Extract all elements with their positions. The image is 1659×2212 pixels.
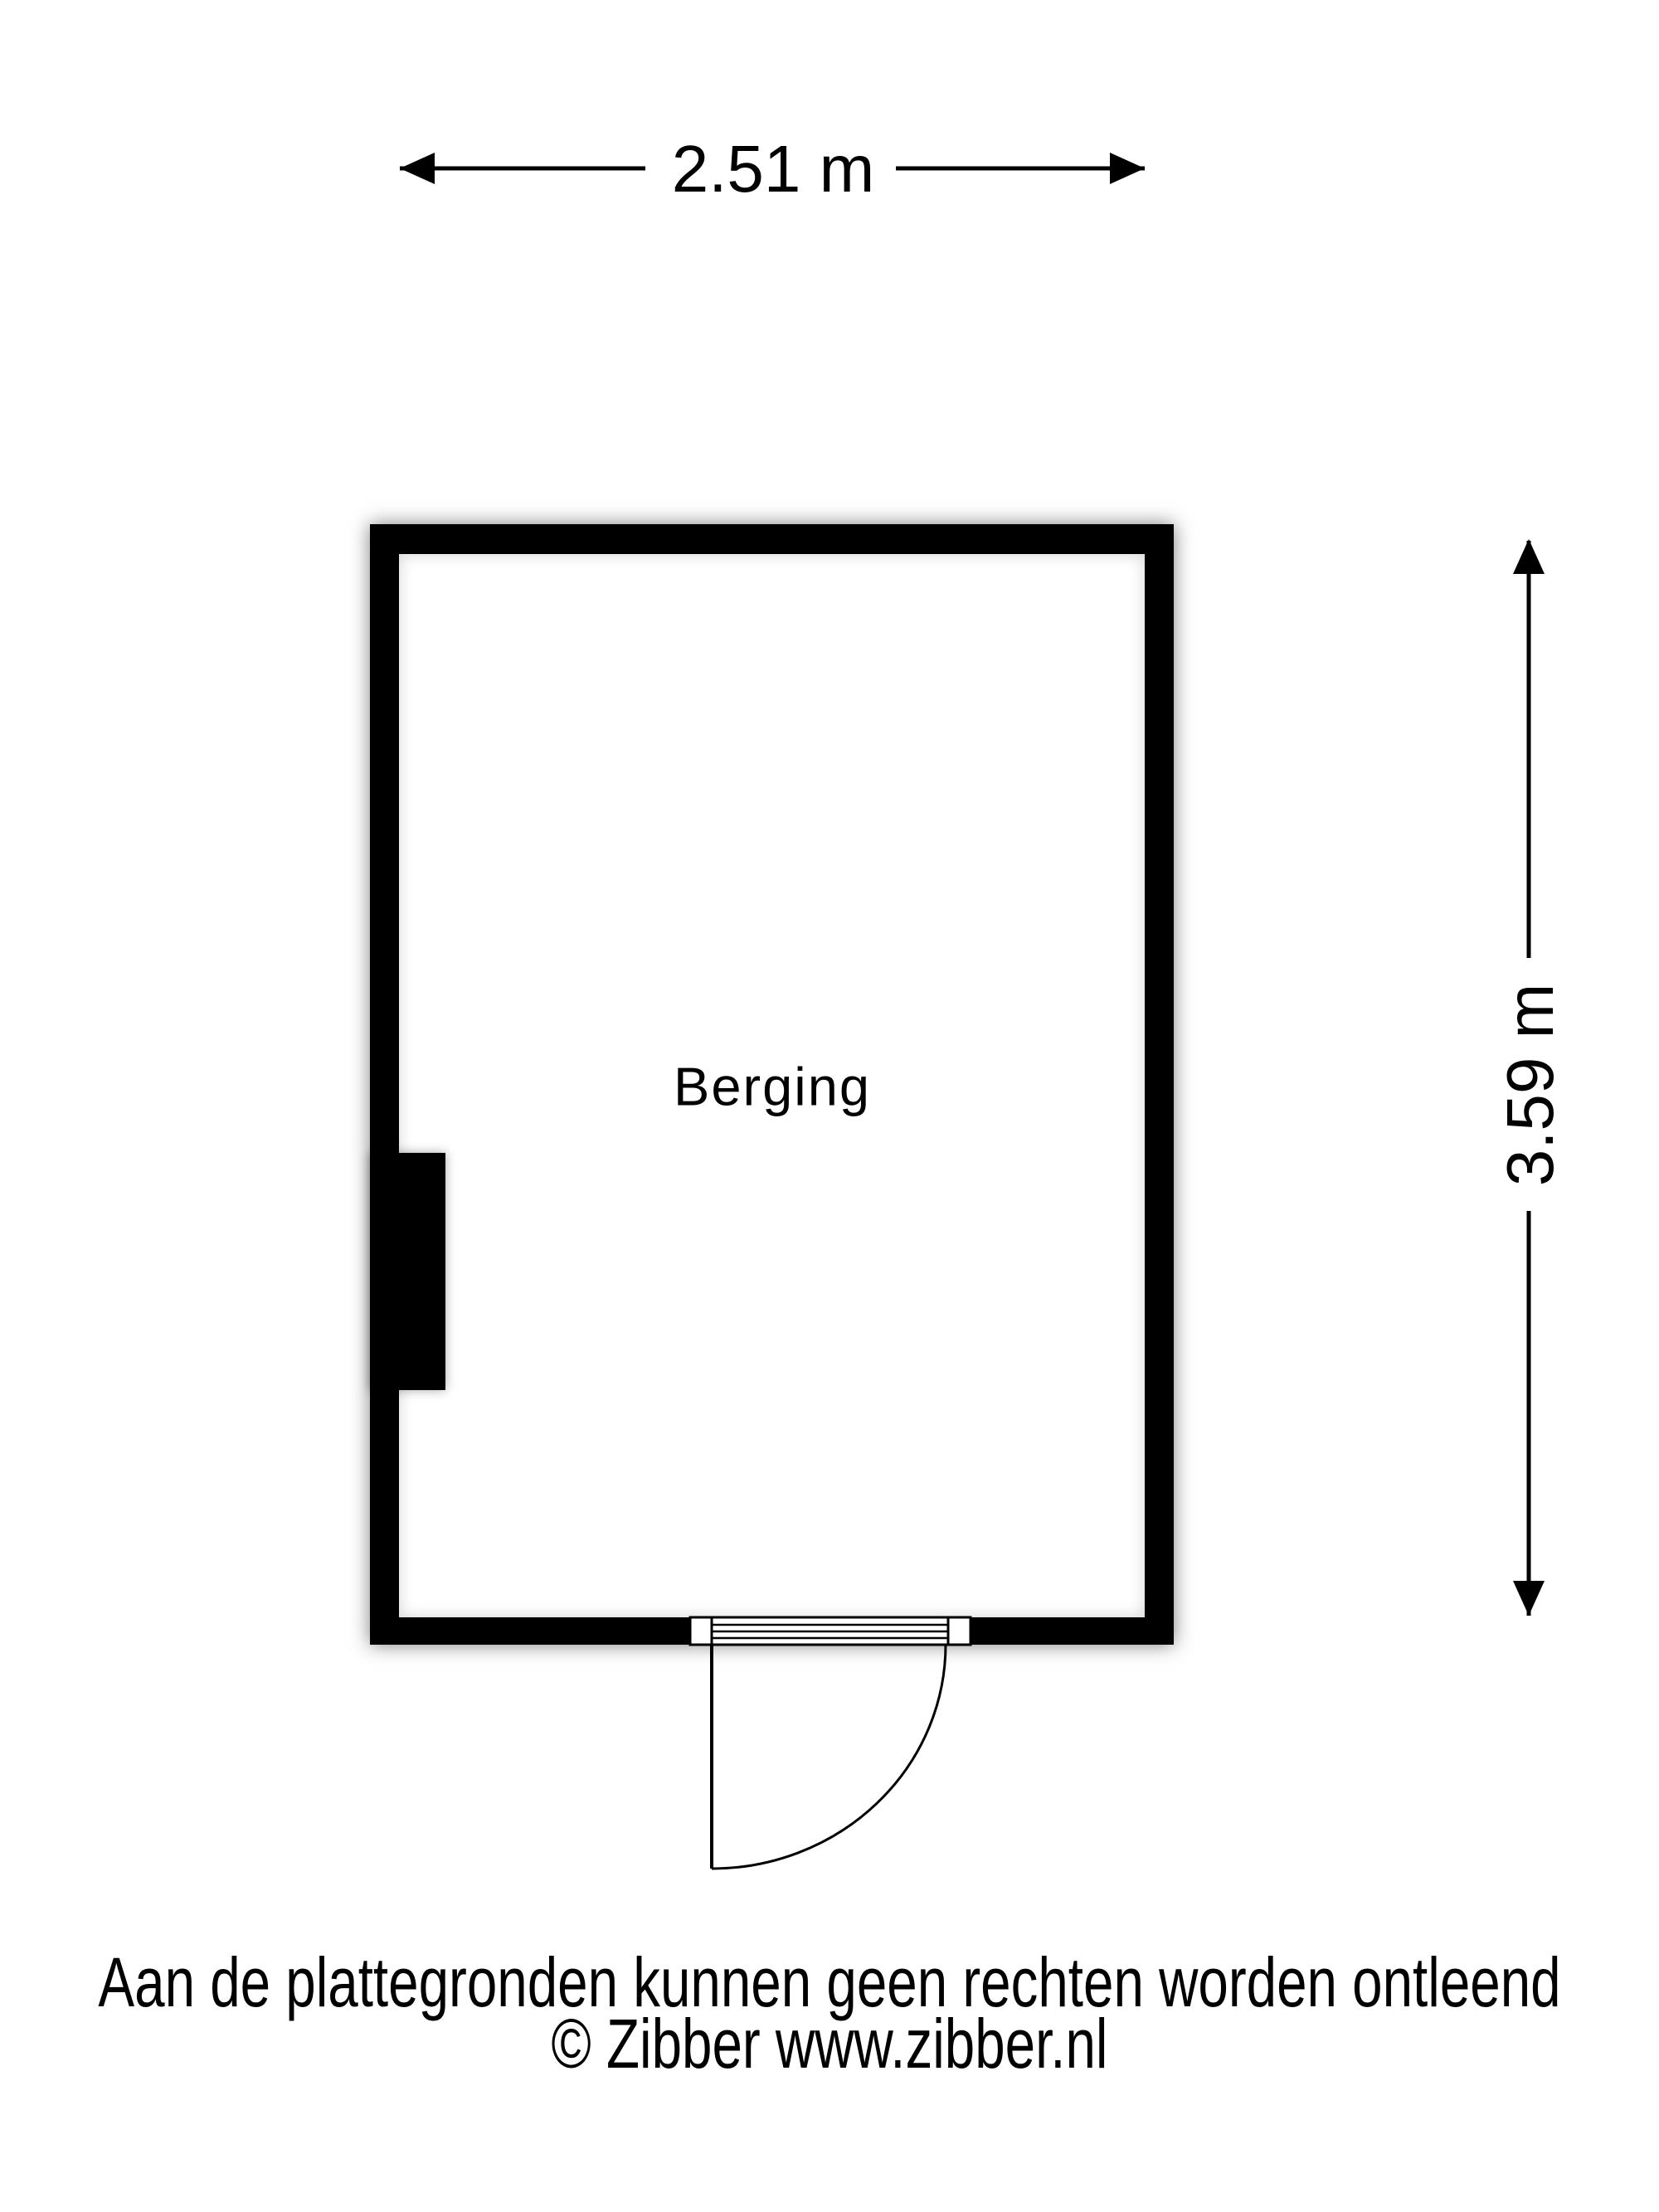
arrowhead-right-icon — [1110, 153, 1145, 184]
floorplan-canvas: 2.51 m 3.59 m Berging Aan de plattegrond… — [0, 0, 1659, 2212]
width-dimension-label: 2.51 m — [672, 136, 875, 202]
arrowhead-left-icon — [400, 153, 435, 184]
arrowhead-up-icon — [1513, 539, 1545, 574]
footer-copyright: © Zibber www.zibber.nl — [552, 2009, 1108, 2078]
arrowhead-down-icon — [1513, 1581, 1545, 1616]
door-symbol — [690, 1617, 971, 1869]
door-swing-arc — [712, 1645, 946, 1869]
height-dimension-label: 3.59 m — [1497, 984, 1564, 1187]
room-label: Berging — [674, 1060, 871, 1114]
